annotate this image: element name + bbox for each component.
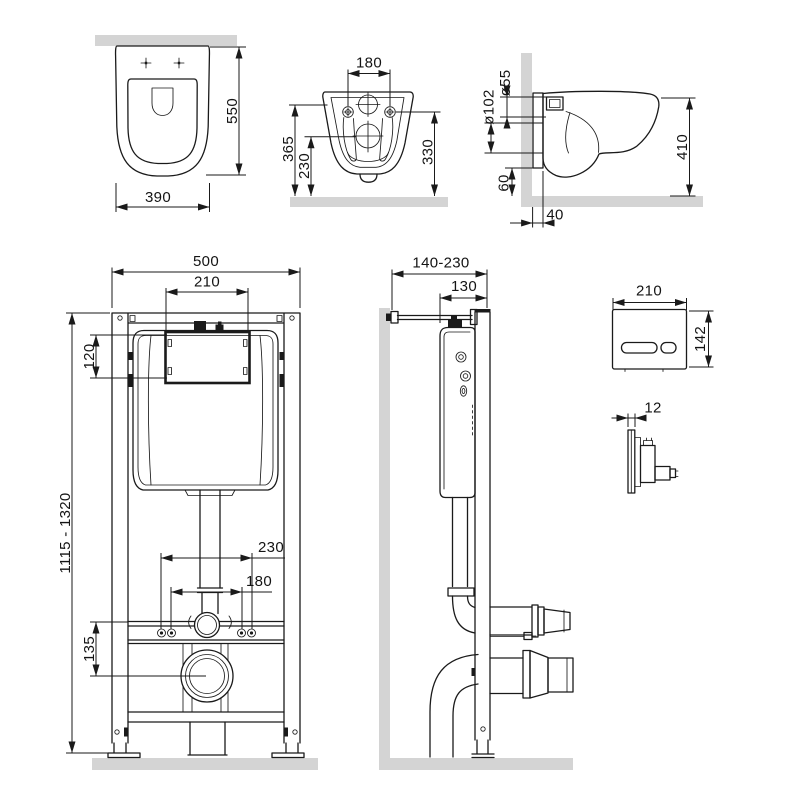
dim-frame-width: 500 (193, 253, 219, 270)
flush-plate-side-view: 12 (612, 400, 679, 494)
frame-front-view: 500 210 120 1115 - 1320 230 180 135 (57, 253, 318, 770)
plate-back-bracket (631, 430, 640, 493)
service-port-upper-inner (459, 355, 464, 360)
dim-plate-width: 210 (636, 283, 662, 300)
dim-bowl-depth: 550 (224, 98, 241, 124)
flush-pipe-port (195, 613, 220, 638)
wall-surface (95, 35, 237, 46)
flush-plate-front-view: 210 142 (613, 283, 714, 372)
cistern-outline (133, 331, 278, 491)
flush-pipe (200, 490, 220, 588)
dim-height-outlet: 230 (296, 153, 313, 179)
frame-column (475, 312, 490, 740)
inlet-crosshair (356, 93, 380, 117)
floor-surface (92, 758, 318, 770)
window-clips (168, 340, 247, 375)
mechanism-top-step (644, 441, 653, 446)
bowl-outline (116, 46, 210, 176)
waste-duct-lower (188, 722, 227, 755)
wall-surface (521, 53, 532, 207)
dim-outlet-drop: 135 (81, 636, 98, 662)
bolt-hole-crosshairs (344, 108, 394, 116)
extension-lines (485, 97, 696, 228)
extension-lines (628, 414, 635, 428)
service-port-upper (456, 352, 466, 362)
flush-pipe-side (453, 498, 468, 587)
dim-window-height: 120 (81, 344, 98, 370)
service-slot (460, 386, 466, 396)
extension-lines (116, 47, 246, 212)
mechanism-cylinder (655, 467, 670, 481)
stud-hole-center (160, 631, 163, 634)
stud-hole-center (170, 631, 173, 634)
dim-inlet-diameter: ø55 (497, 70, 514, 97)
bowl-side-view: ø55 ø102 410 60 40 (481, 53, 704, 228)
service-slot-inner (462, 388, 465, 393)
bolt-cross-marks (141, 58, 184, 68)
inlet-connector-inner (550, 100, 561, 108)
rod-wall-anchor (391, 312, 398, 324)
seat-opening (128, 79, 197, 164)
inlet-connector (547, 97, 564, 110)
waste-stub-pipe (490, 658, 523, 694)
dim-outlet-diameter: ø102 (481, 89, 498, 124)
dim-stud-spacing-inner: 180 (246, 573, 272, 590)
bottom-brackets (124, 728, 288, 737)
cistern-inner-line (138, 336, 273, 486)
dim-plate-height: 142 (692, 326, 709, 352)
cistern-top-cap (448, 316, 462, 328)
stud-hole-center (250, 631, 253, 634)
dim-bowl-width: 390 (145, 189, 171, 206)
dim-height-rim: 330 (420, 139, 437, 165)
waste-stub-cone (530, 651, 548, 699)
flush-elbow (453, 596, 476, 633)
frame-side-view: 140-230 130 (379, 255, 573, 771)
mounting-plate (533, 93, 543, 168)
frame-hole-top-right (290, 316, 294, 320)
waste-elbow (430, 655, 478, 758)
bowl-back-view: 180 365 230 330 (280, 55, 448, 208)
flush-pipe-flange (185, 490, 235, 496)
rod-bolt-head (386, 314, 391, 322)
frame-hole-bottom-left (115, 730, 119, 734)
dim-bolt-spacing: 180 (356, 55, 382, 72)
lower-crossbar (128, 712, 284, 722)
dim-depth: 410 (674, 134, 691, 160)
column-top-cap (475, 309, 491, 313)
frame-top-tabs (130, 316, 282, 322)
bowl-top-view: 550 390 (95, 35, 246, 212)
inlet-stub-flange (532, 605, 538, 637)
extension-lines (289, 70, 441, 137)
flush-plate (613, 310, 687, 370)
floor-surface (390, 758, 573, 770)
stud-hole-center (240, 631, 243, 634)
inlet-stub-nut (524, 633, 532, 640)
column-foot (472, 740, 494, 758)
waste-stub-flange (523, 651, 530, 699)
flush-distributor (152, 88, 173, 116)
wall-bracket-rod (398, 316, 473, 320)
column-clip (472, 668, 476, 676)
flush-button-small (661, 343, 676, 354)
outlet-spigot (360, 174, 377, 182)
floor-surface (532, 196, 703, 207)
floor-surface (290, 197, 448, 207)
flush-pipe-coupling (448, 588, 474, 596)
dim-depth-range: 140-230 (412, 255, 469, 272)
inlet-stub-cone (544, 609, 570, 633)
dim-height-range: 1115 - 1320 (57, 492, 74, 573)
flush-button-large (622, 343, 658, 354)
frame-hole-bottom-right (293, 730, 297, 734)
column-hole (481, 727, 485, 731)
dim-bottom-clearance: 60 (496, 174, 513, 191)
dim-window-width: 210 (194, 274, 220, 291)
dim-frame-depth: 130 (451, 278, 477, 295)
service-port-lower (461, 371, 471, 381)
waste-stub-cylinder (548, 658, 573, 692)
mechanism-end-cap (670, 469, 676, 478)
access-window (166, 332, 250, 383)
frame-hole-top-left (118, 316, 122, 320)
service-port-lower-inner (463, 374, 468, 379)
installation-drawing: 550 390 180 365 230 330 (0, 0, 800, 800)
dim-plate-thickness: 12 (644, 400, 661, 417)
mechanism-body (641, 446, 656, 483)
inlet-stub-body (538, 607, 544, 635)
wall-surface (379, 308, 390, 770)
dim-height-overall: 365 (280, 136, 297, 162)
technical-drawing-page: 550 390 180 365 230 330 (0, 0, 800, 800)
inlet-stub-pipe (490, 607, 532, 635)
inner-bowl-lines (566, 112, 599, 154)
dim-wall-offset: 40 (546, 207, 563, 224)
dim-stud-spacing-outer: 230 (258, 539, 284, 556)
